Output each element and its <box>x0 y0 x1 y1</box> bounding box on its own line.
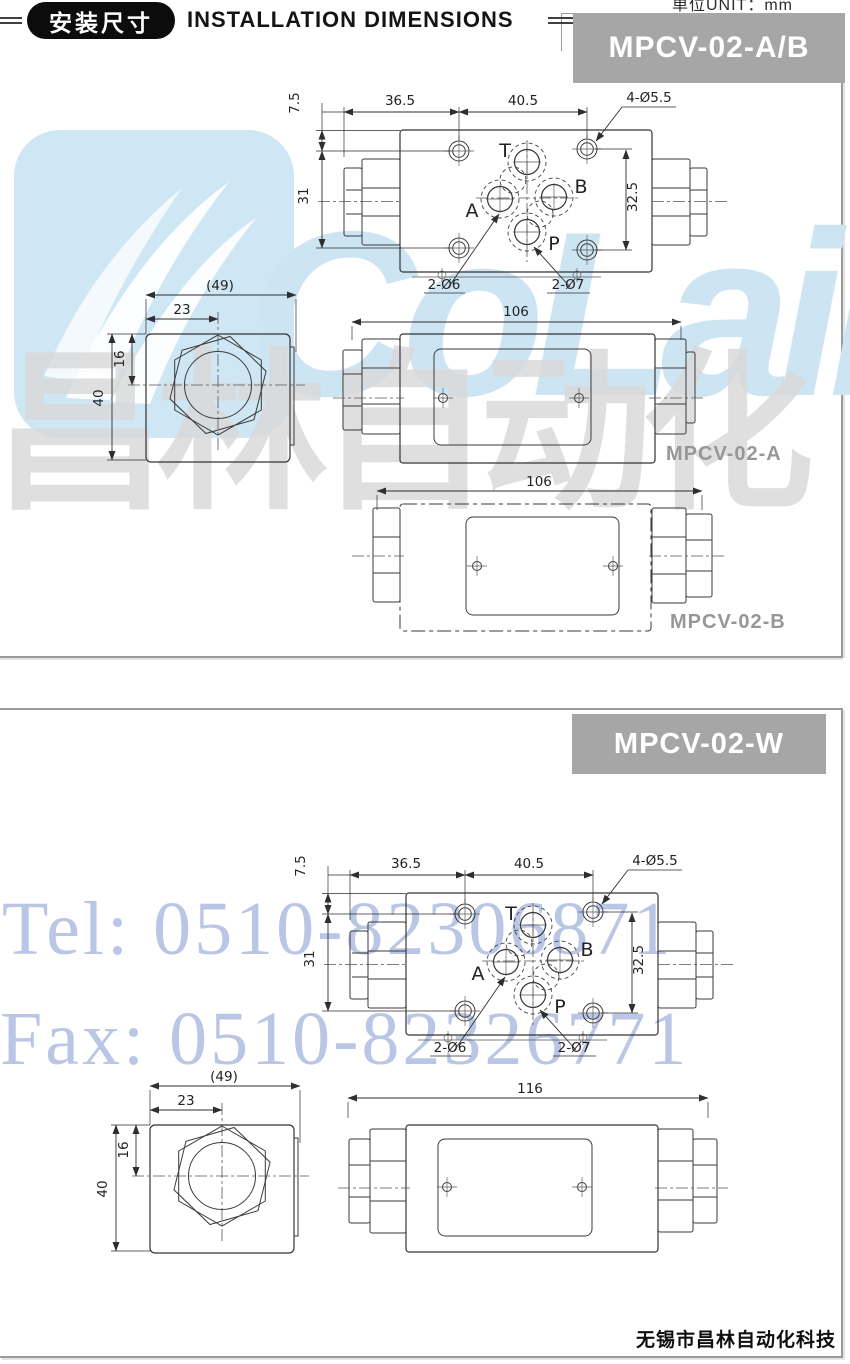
end-view-2 <box>95 1069 309 1253</box>
dim-106-b-label: 106 <box>526 474 552 490</box>
catalog-page: CoLair 昌林自动化 Tel: 0510-82306871 Fax: 051… <box>0 0 850 1364</box>
top-view-ab <box>287 90 730 293</box>
front-view-w: 116 <box>338 1081 728 1252</box>
front-view-a: 106 MPCV-02-A <box>333 304 782 465</box>
front-view-b-model-label: MPCV-02-B <box>670 611 786 633</box>
dim-116-label: 116 <box>517 1081 543 1097</box>
footer-company: 无锡市昌林自动化科技 <box>500 1325 836 1352</box>
top-view-w <box>293 853 736 1056</box>
dim-106-a-label: 106 <box>503 304 529 320</box>
front-view-b: 106 MPCV-02-B <box>352 474 786 633</box>
front-view-a-model-label: MPCV-02-A <box>666 443 782 465</box>
drawings-layer: 7.5 31 36.5 40.5 4-Ø5.5 32.5 2-Ø6 2-Ø7 T… <box>0 0 850 1364</box>
end-view-1 <box>91 278 305 462</box>
